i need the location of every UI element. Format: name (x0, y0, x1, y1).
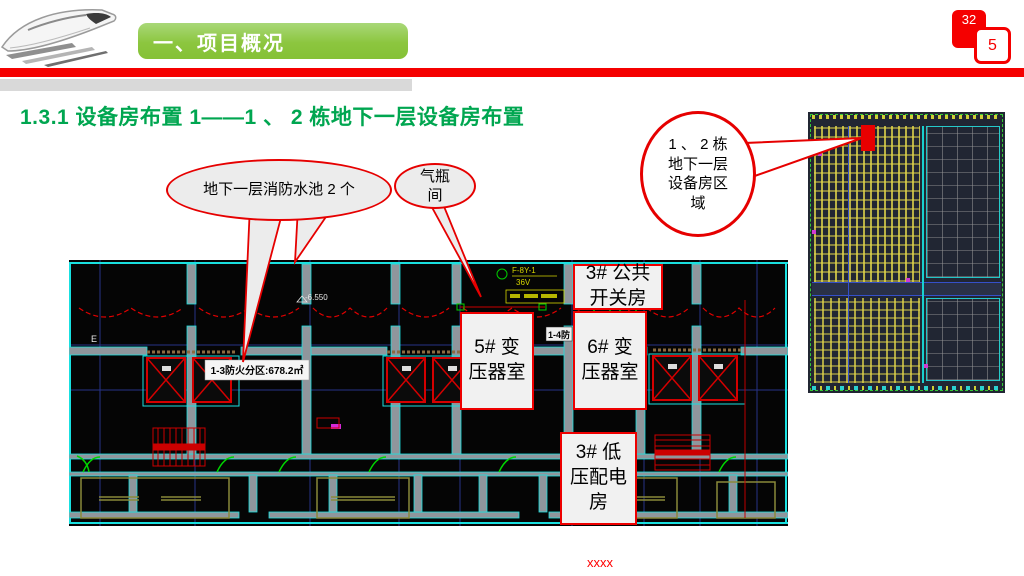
train-logo-icon (0, 2, 140, 70)
room-label-low-voltage: 3# 低压配电房 (560, 432, 637, 525)
plan-grid-label: E (91, 334, 97, 344)
room-label-public-switch: 3# 公共开关房 (573, 264, 663, 310)
section-banner-label: 一、项目概况 (153, 27, 285, 56)
red-divider (0, 68, 1024, 77)
plan-device-label: F-8Y-1 (512, 266, 536, 275)
room-label-transformer-5: 5# 变压器室 (460, 312, 534, 410)
zone-chip-label: 1-4防 (548, 329, 570, 340)
callout-gas-room: 气瓶间 (394, 163, 476, 209)
callout-region: 1 、 2 栋地下一层设备房区 域 (640, 111, 756, 237)
gray-divider (0, 79, 412, 91)
callout-fire-pool: 地下一层消防水池 2 个 (166, 159, 392, 221)
page-number-front-badge: 5 (974, 27, 1011, 64)
keyplan-grid-area (926, 126, 1000, 278)
highlight-marker (861, 125, 875, 151)
plan-elevation-a: -6.550 (305, 293, 328, 302)
mini-keyplan-image (808, 112, 1005, 393)
page-title: 1.3.1 设备房布置 1——1 、 2 栋地下一层设备房布置 (20, 101, 740, 131)
footer-text: xxxx (570, 555, 630, 570)
main-floorplan-image: F-8Y-1 36V E -6.550 -6.550 1-3防火分区:678.2… (69, 260, 788, 526)
presentation-slide: 一、项目概况 32 5 1.3.1 设备房布置 1——1 、 2 栋地下一层设备… (0, 0, 1024, 576)
plan-device-sub-label: 36V (516, 278, 531, 287)
fire-zone-label: 1-3防火分区:678.2㎡ (211, 364, 304, 377)
section-banner: 一、项目概况 (138, 23, 408, 59)
room-label-transformer-6: 6# 变压器室 (573, 311, 647, 410)
